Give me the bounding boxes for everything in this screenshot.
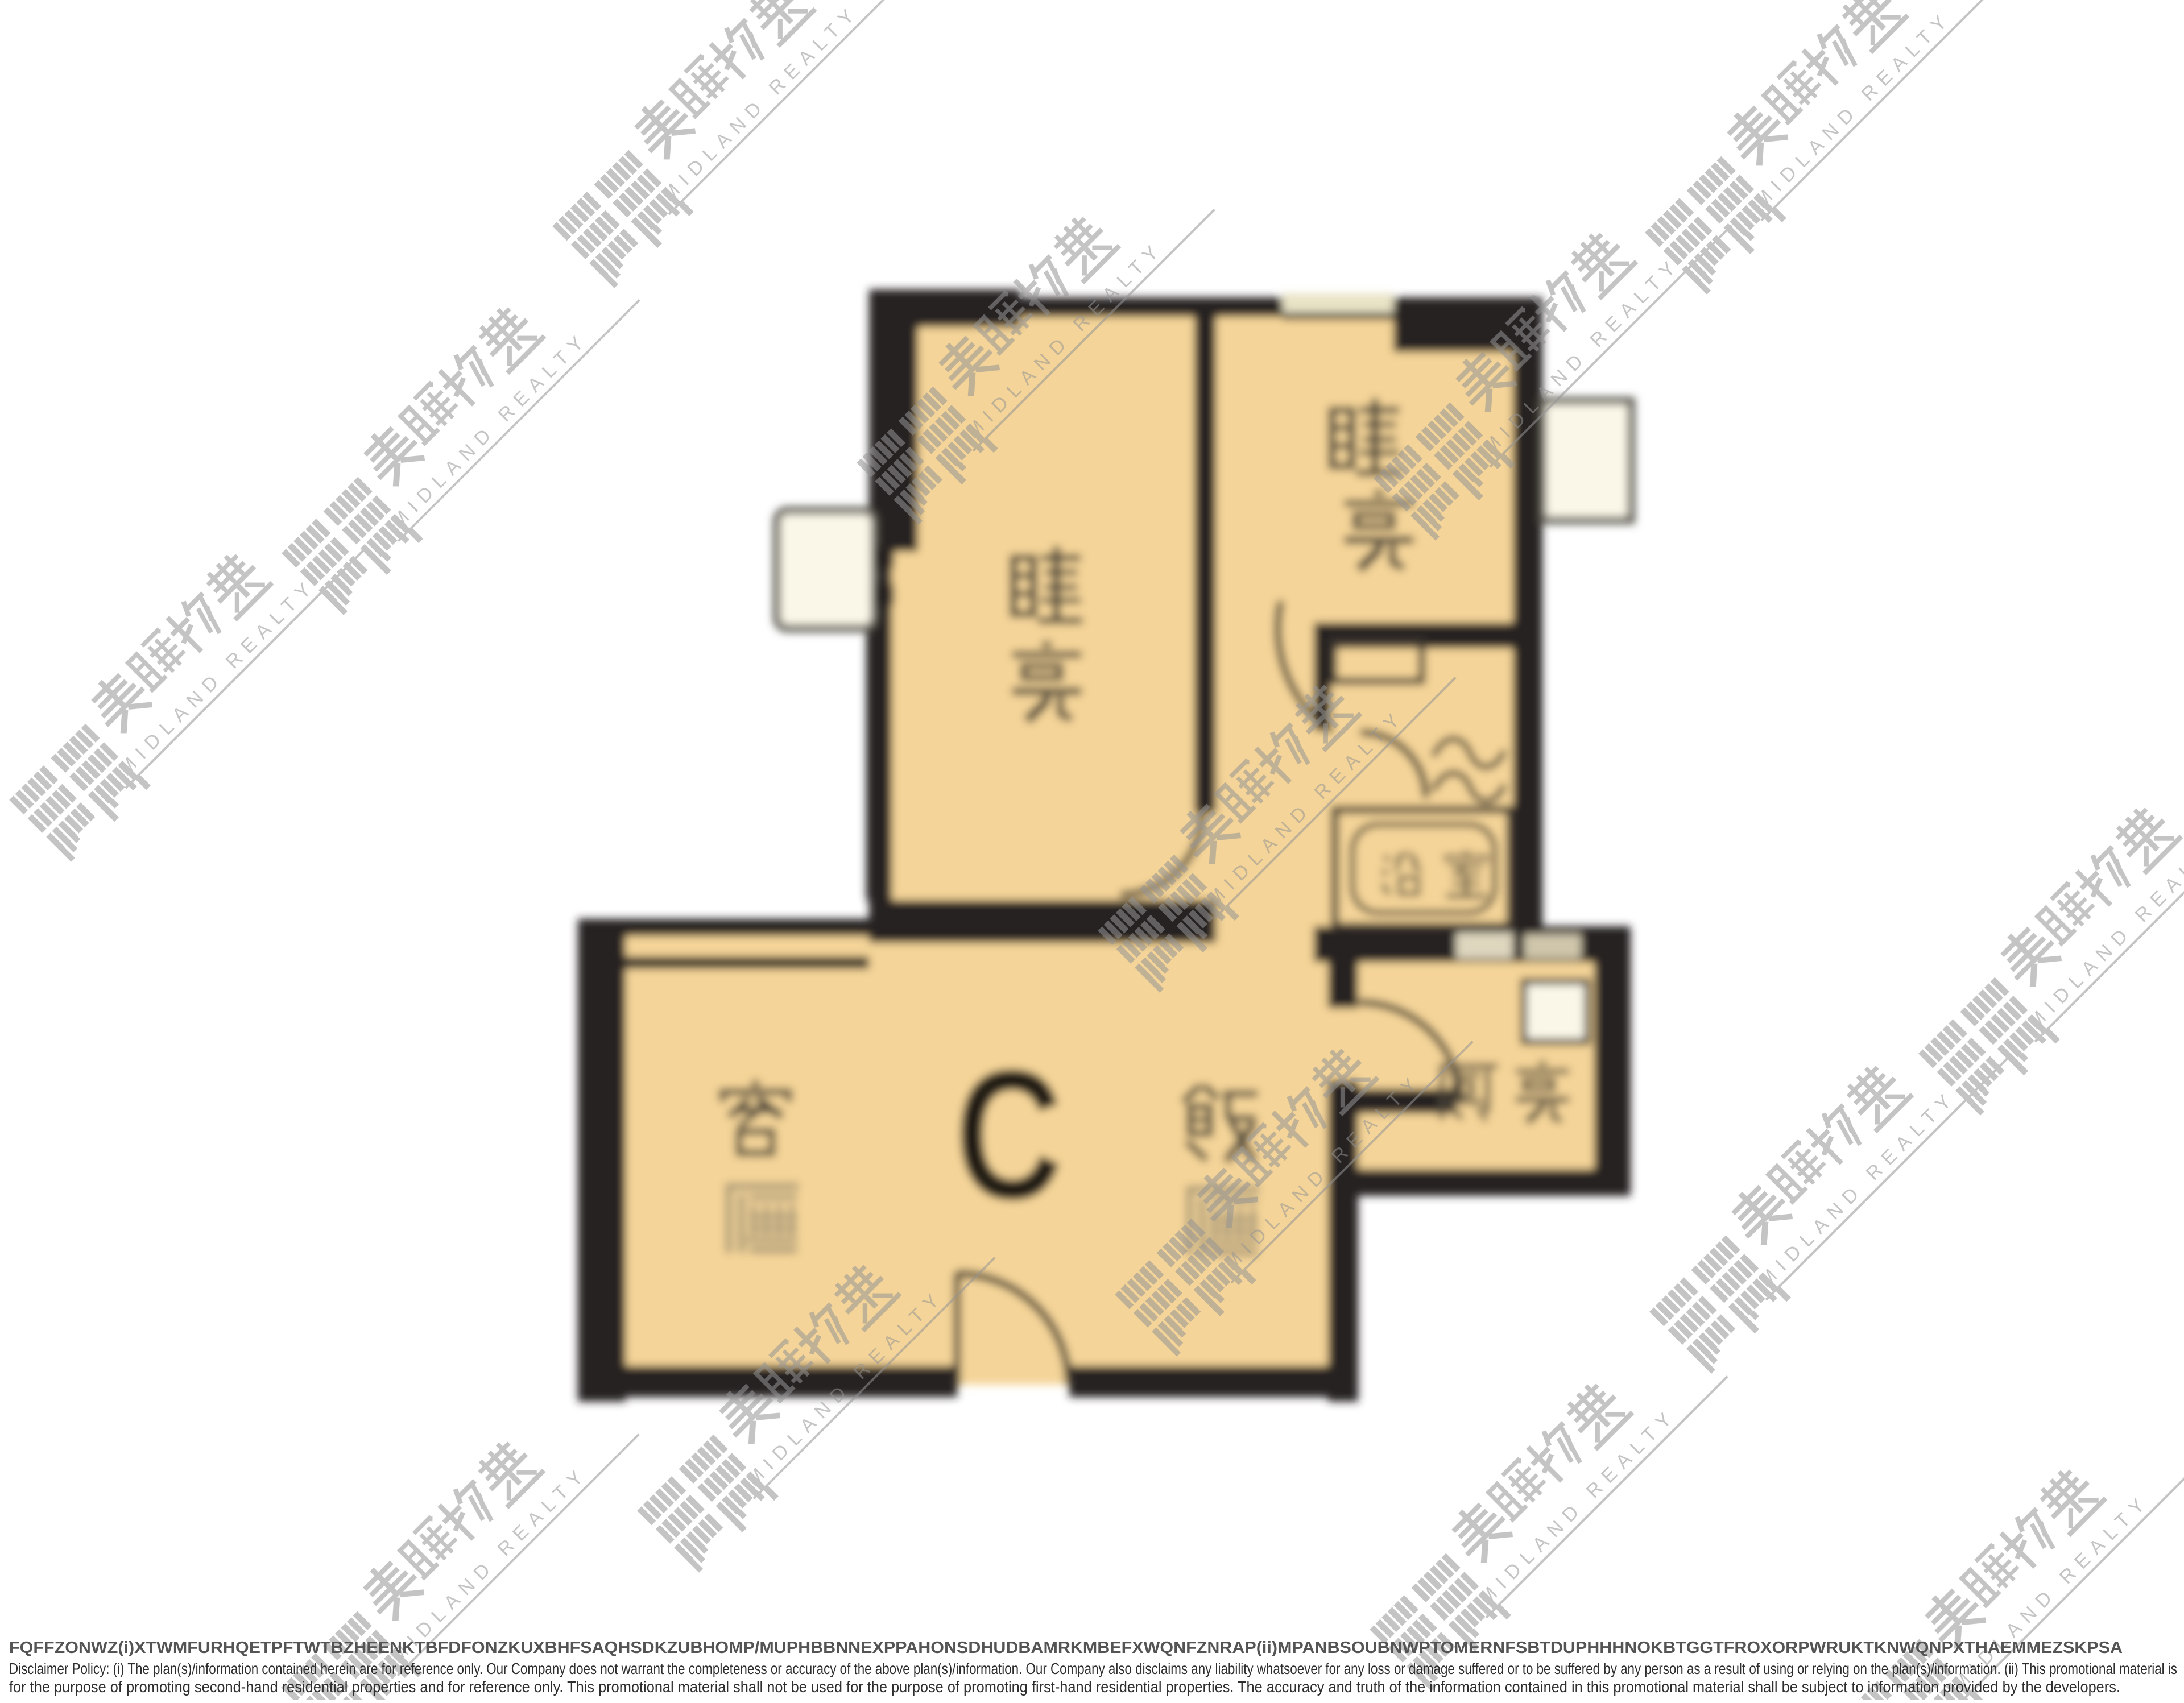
svg-text:FQFFZONWZ(i)XTWMFURHQETPFTWTBZ: FQFFZONWZ(i)XTWMFURHQETPFTWTBZHEENKTBFDF… — [9, 1639, 2123, 1657]
svg-text:C: C — [955, 1031, 1063, 1238]
svg-text:Disclaimer Policy: (i) The pla: Disclaimer Policy: (i) The plan(s)/infor… — [9, 1660, 2177, 1677]
svg-text:for the purpose of promoting s: for the purpose of promoting second-hand… — [9, 1678, 2120, 1696]
